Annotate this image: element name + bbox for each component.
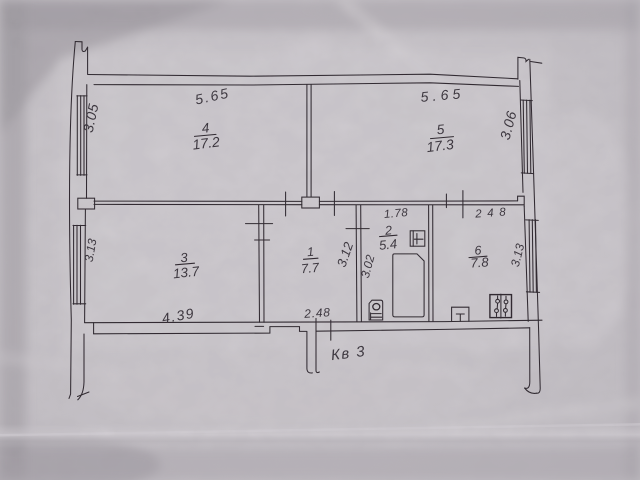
svg-text:7.8: 7.8 bbox=[470, 254, 490, 270]
svg-text:1.78: 1.78 bbox=[383, 207, 408, 221]
svg-text:17.2: 17.2 bbox=[192, 133, 221, 152]
svg-text:13.7: 13.7 bbox=[172, 264, 200, 282]
svg-text:2 4 8: 2 4 8 bbox=[474, 206, 507, 220]
svg-text:4: 4 bbox=[201, 120, 210, 136]
svg-text:2.48: 2.48 bbox=[303, 305, 331, 321]
svg-text:7.7: 7.7 bbox=[300, 260, 320, 277]
svg-text:17.3: 17.3 bbox=[426, 136, 455, 155]
svg-text:5.4: 5.4 bbox=[378, 236, 398, 253]
svg-text:1: 1 bbox=[306, 245, 314, 260]
